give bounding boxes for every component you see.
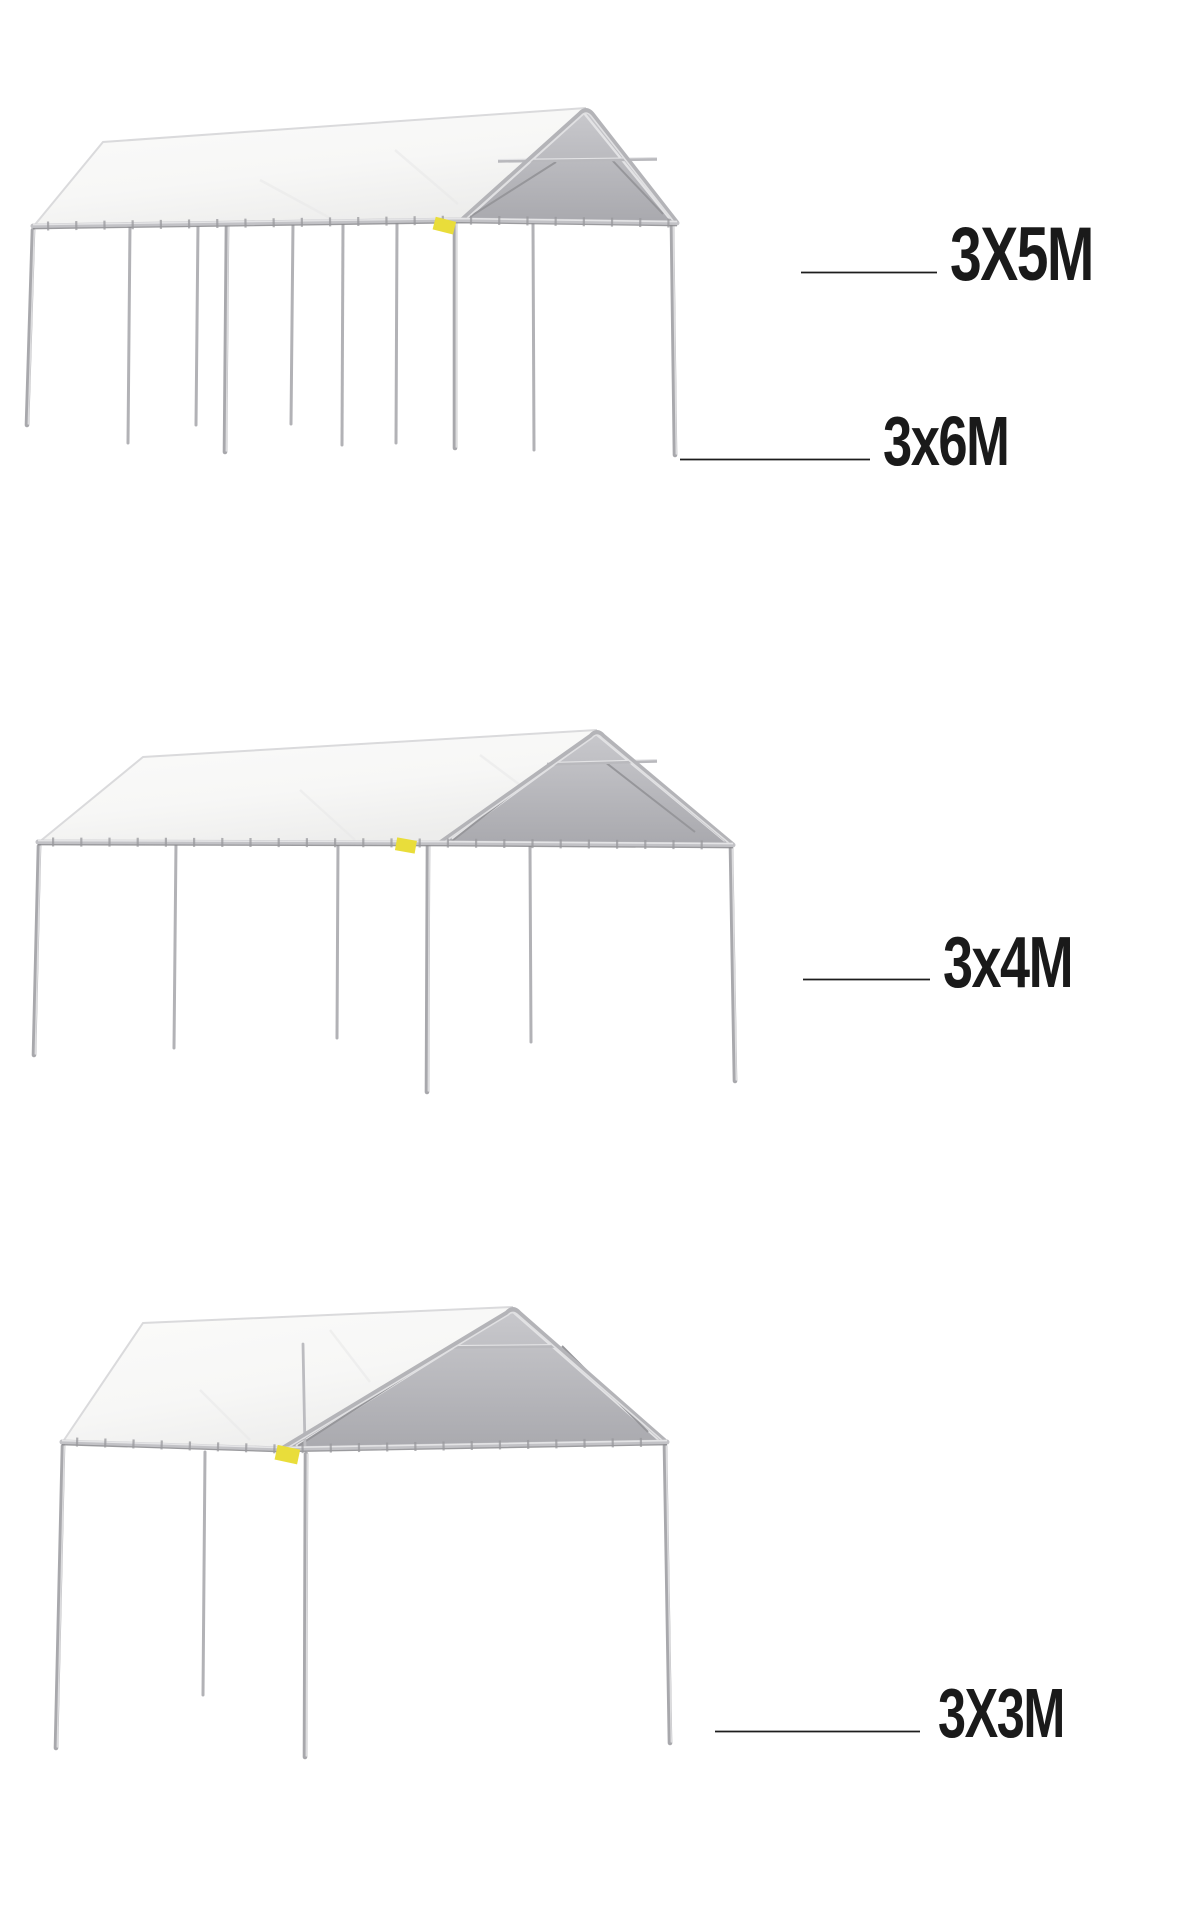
tent-medium-rear-legs	[174, 842, 531, 1048]
tent-medium-image	[34, 730, 736, 1092]
tent-large-image	[27, 108, 677, 455]
tent-medium-front-legs	[34, 845, 736, 1092]
size-label-3x3m: 3X3M	[938, 1674, 1064, 1752]
tent-small-rear-legs	[203, 1452, 205, 1695]
tent-small-front-legs	[56, 1446, 671, 1757]
size-label-3x4m: 3x4M	[943, 923, 1072, 1003]
size-label-3x5m: 3X5M	[950, 212, 1093, 297]
tent-large-rear-legs	[128, 222, 534, 450]
size-annotations: 3X5M 3x6M 3x4M 3X3M	[680, 212, 1093, 1752]
size-label-3x6m: 3x6M	[883, 403, 1008, 481]
tent-large-front-legs	[27, 222, 676, 455]
tent-small-image	[56, 1307, 671, 1757]
canopy-size-collage: 3X5M 3x6M 3x4M 3X3M	[0, 0, 1201, 1920]
